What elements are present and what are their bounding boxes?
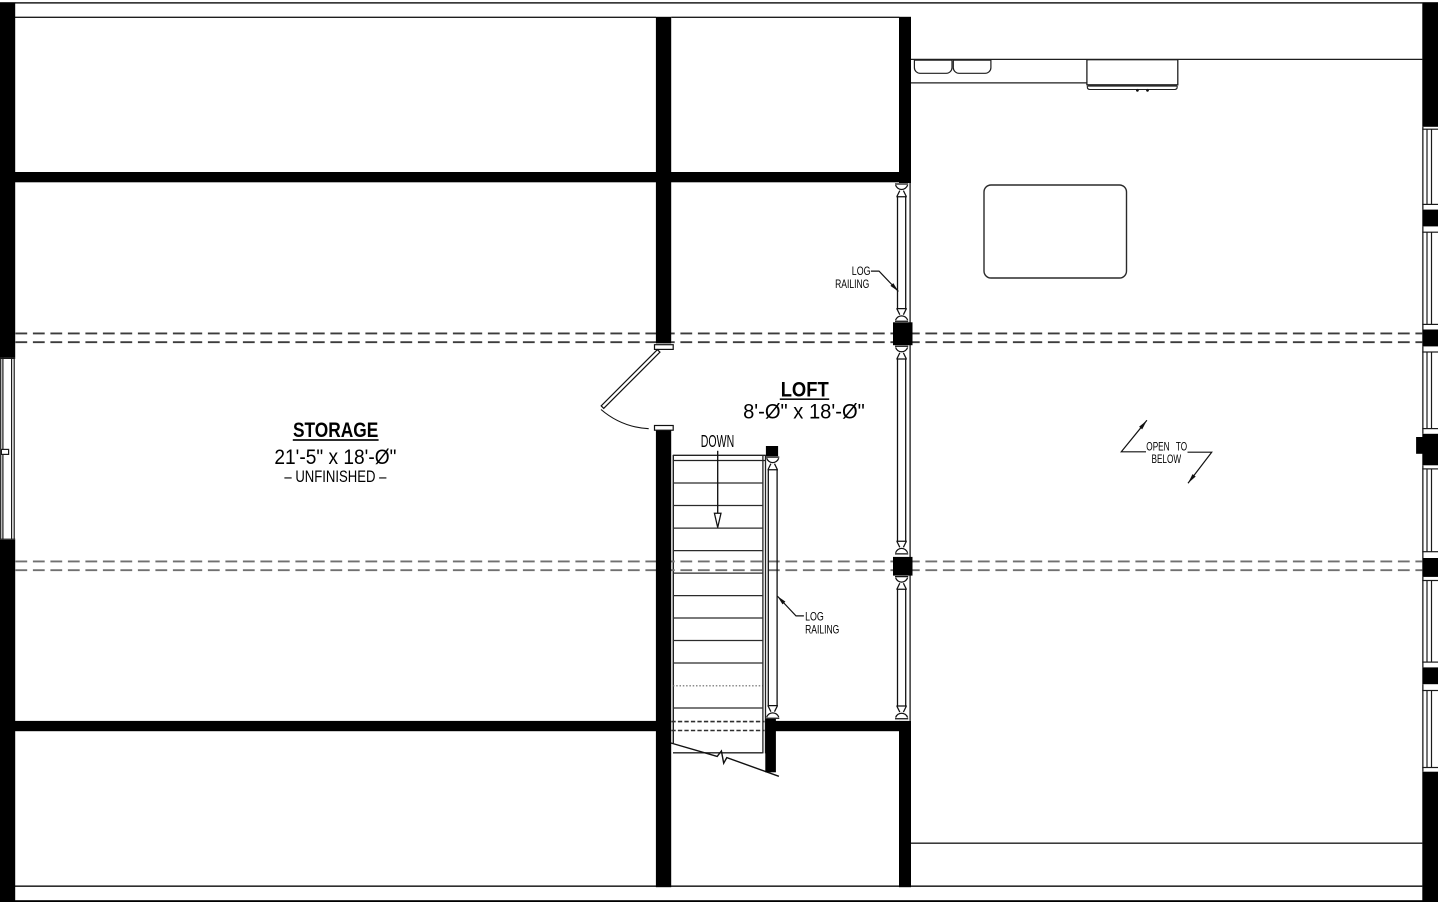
svg-text:21'-5" x 18'-Ø": 21'-5" x 18'-Ø" [274, 446, 396, 469]
svg-text:LOG: LOG [852, 264, 871, 278]
svg-text:RAILING: RAILING [805, 622, 839, 636]
svg-text:STORAGE: STORAGE [293, 418, 378, 442]
svg-text:– UNFINISHED –: – UNFINISHED – [284, 467, 387, 486]
svg-text:DOWN: DOWN [701, 431, 734, 451]
svg-text:RAILING: RAILING [835, 277, 869, 291]
svg-text:BELOW: BELOW [1152, 452, 1182, 466]
svg-text:8'-Ø" x 18'-Ø": 8'-Ø" x 18'-Ø" [743, 400, 865, 423]
svg-text:LOFT: LOFT [781, 376, 829, 401]
svg-text:LOG: LOG [805, 610, 824, 624]
